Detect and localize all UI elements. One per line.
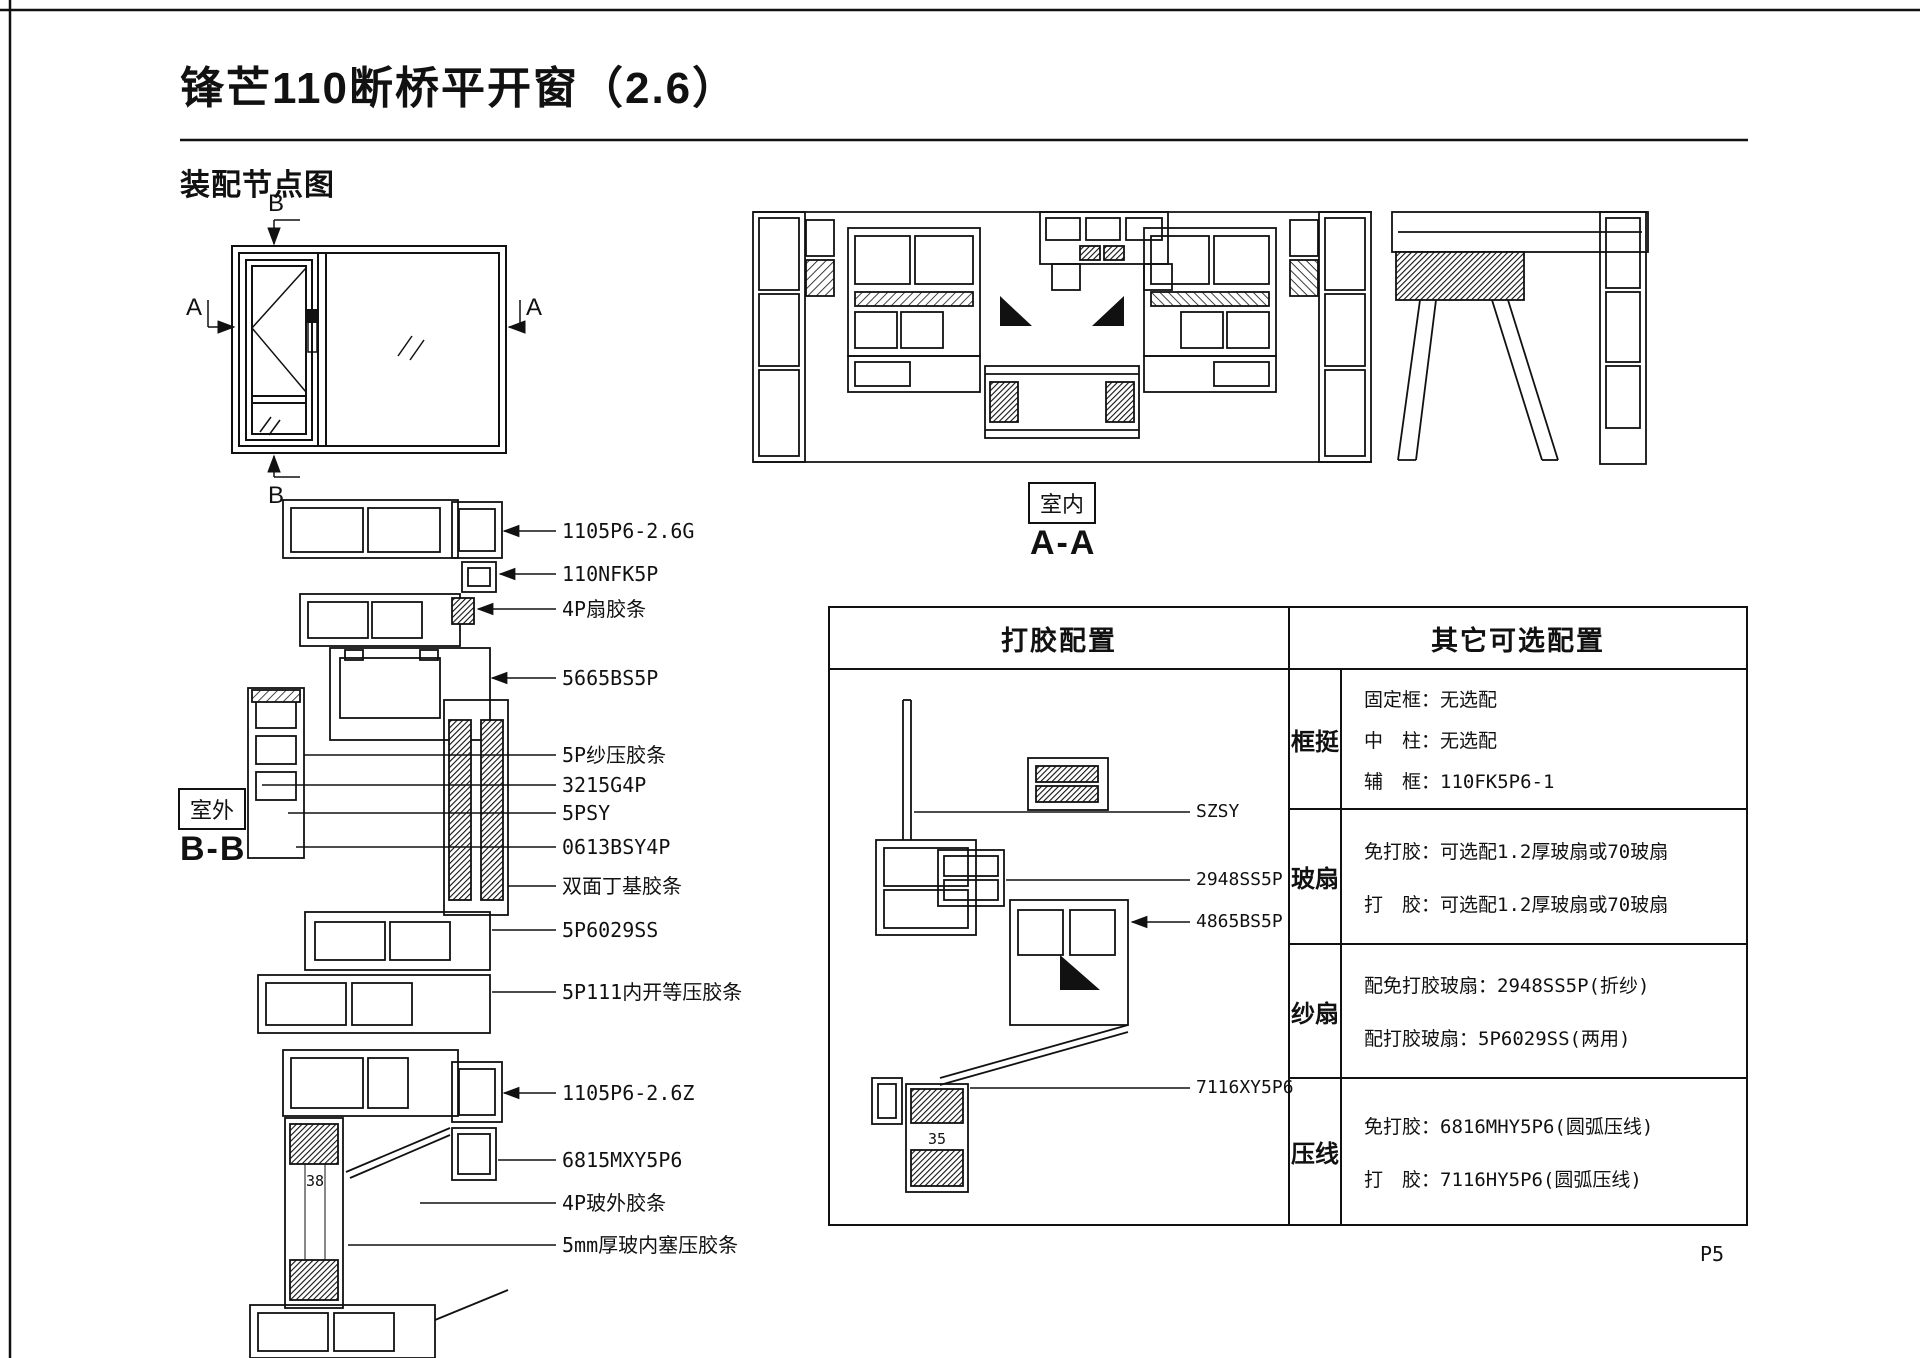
- row-content-bead: 免打胶：6816MHY5P6(圆弧压线) 打 胶：7116HY5P6(圆弧压线): [1342, 1079, 1746, 1224]
- config-line: 免打胶：可选配1.2厚玻扇或70玻扇: [1364, 837, 1746, 864]
- elevation-marker-b-top: B: [268, 190, 284, 218]
- row-category-screen-sash: 纱扇: [1290, 945, 1342, 1079]
- bb-section-drawing: [248, 500, 508, 1358]
- diagram-callout-label: SZSY: [1196, 800, 1239, 824]
- row-content-frame: 固定框：无选配 中 柱：无选配 辅 框：110FK5P6-1: [1342, 670, 1746, 810]
- row-content-glass-sash: 免打胶：可选配1.2厚玻扇或70玻扇 打 胶：可选配1.2厚玻扇或70玻扇: [1342, 810, 1746, 945]
- bb-callout-label: 5mm厚玻内塞压胶条: [562, 1232, 738, 1258]
- bb-glass-dimension: 38: [306, 1172, 324, 1190]
- row-category-frame: 框挺: [1290, 670, 1342, 810]
- config-line: 固定框：无选配: [1364, 685, 1746, 712]
- diagram-callout-label: 2948SS5P: [1196, 868, 1283, 892]
- bb-callout-label: 1105P6-2.6G: [562, 518, 694, 544]
- bb-callout-leaders: [262, 531, 556, 1245]
- page-title: 锋芒110断桥平开窗（2.6）: [180, 52, 738, 116]
- aa-section-name: A-A: [1030, 524, 1096, 563]
- config-line: 打 胶：7116HY5P6(圆弧压线): [1364, 1165, 1746, 1192]
- row-category-bead: 压线: [1290, 1079, 1342, 1224]
- config-line: 配打胶玻扇：5P6029SS(两用): [1364, 1024, 1746, 1051]
- diagram-glass-dimension: 35: [928, 1130, 946, 1148]
- glue-config-header: 打胶配置: [830, 608, 1290, 670]
- diagram-callout-label: 4865BS5P: [1196, 910, 1283, 934]
- config-line: 免打胶：6816MHY5P6(圆弧压线): [1364, 1112, 1746, 1139]
- config-line: 配免打胶玻扇：2948SS5P(折纱): [1364, 971, 1746, 998]
- drawing-sheet: 锋芒110断桥平开窗（2.6） 装配节点图 B B A A 室内 A-A 室外 …: [0, 0, 1920, 1358]
- glue-config-diagram-cell: [830, 670, 1290, 1224]
- bb-callout-label: 4P扇胶条: [562, 596, 646, 622]
- bb-room-label: 室外: [178, 788, 246, 830]
- elevation-drawing: [208, 220, 520, 477]
- bb-callout-label: 3215G4P: [562, 772, 646, 798]
- bb-callout-label: 6815MXY5P6: [562, 1147, 682, 1173]
- bb-callout-label: 5P6029SS: [562, 917, 658, 943]
- row-category-glass-sash: 玻扇: [1290, 810, 1342, 945]
- config-line: 打 胶：可选配1.2厚玻扇或70玻扇: [1364, 890, 1746, 917]
- diagram-callout-label: 7116XY5P6: [1196, 1076, 1294, 1100]
- bb-section-name: B-B: [180, 830, 246, 869]
- aa-section-drawing: [753, 212, 1648, 464]
- config-table: 打胶配置 其它可选配置 框挺 固定框：无选配 中 柱：无选配 辅 框：110FK…: [828, 606, 1748, 1226]
- config-line: 辅 框：110FK5P6-1: [1364, 767, 1746, 794]
- page-number: P5: [1700, 1242, 1724, 1266]
- bb-callout-label: 双面丁基胶条: [562, 873, 682, 899]
- bb-callout-label: 5P纱压胶条: [562, 742, 666, 768]
- bb-callout-label: 5665BS5P: [562, 665, 658, 691]
- config-line: 中 柱：无选配: [1364, 726, 1746, 753]
- elevation-marker-a-left: A: [186, 294, 202, 322]
- bb-callout-label: 110NFK5P: [562, 561, 658, 587]
- bb-callout-label: 0613BSY4P: [562, 834, 670, 860]
- bb-callout-label: 4P玻外胶条: [562, 1190, 666, 1216]
- bb-callout-label: 1105P6-2.6Z: [562, 1080, 694, 1106]
- bb-callout-label: 5PSY: [562, 800, 610, 826]
- elevation-marker-a-right: A: [526, 294, 542, 322]
- optional-config-header: 其它可选配置: [1290, 608, 1746, 670]
- elevation-marker-b-bottom: B: [268, 482, 284, 510]
- row-content-screen-sash: 配免打胶玻扇：2948SS5P(折纱) 配打胶玻扇：5P6029SS(两用): [1342, 945, 1746, 1079]
- bb-callout-label: 5P111内开等压胶条: [562, 979, 742, 1005]
- aa-room-label: 室内: [1028, 482, 1096, 524]
- assembly-diagram-heading: 装配节点图: [180, 160, 335, 204]
